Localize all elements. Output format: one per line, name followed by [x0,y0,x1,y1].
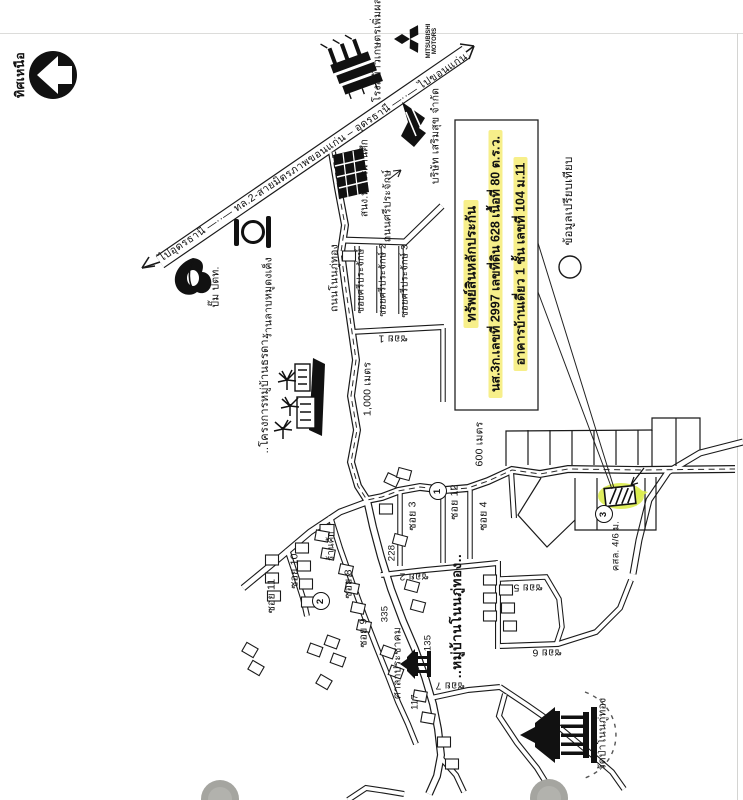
marker-circle-2: 2 [312,592,330,610]
restaurant-label: ร้านลาบหมูดงเค็ง [260,257,277,339]
subject-line1: ทรัพย์สินหลักประกัน [464,200,479,328]
soi-sriprajak-1-label: ซอยศรีประจักษ์ [354,249,369,314]
restaurant-icon [234,216,271,248]
house-number-335: 335 [380,606,391,622]
subject-property-text: ทรัพย์สินหลักประกัน นส.3ก.เลขที่ 2997 เล… [459,130,534,398]
soi-11-label: ซอย 11 [263,579,280,614]
north-label: ทิศเหนือ [10,52,30,98]
concrete-road-size-label: คสล. 4/6 ม. [609,521,624,571]
soi-6-label: ซอย 6 [532,645,561,662]
soi-5-label: ซอย 5 [513,580,542,597]
soi-3-label: ซอย 3 [404,501,421,530]
soi-10-label: ซอย 10 [286,553,303,588]
plot-grid [506,418,700,547]
mitsubishi-label: MITSUBISHI MOTORS [426,24,438,59]
house-number-135: 135 [423,635,434,651]
comparison-data-label: ข้อมูลเปรียบเทียบ [560,157,578,246]
soi-7-label: ซอย 7 [435,678,464,695]
marker-circle-1: 1 [429,482,447,500]
soi-sriprajak-3-label: ซอยศรีประจักษ์ 3 [398,244,413,317]
nonphuthong-road-label: ถนนโนนภู่ทอง [326,244,343,312]
subject-plot [598,468,648,509]
soi-1-label: ซอย 1 [378,331,407,348]
housing-project-label: ..โครงการหมู่บ้านธรดา.. [255,333,273,454]
soi-12-label: ซอย 12 [446,484,463,519]
house-number-117: 117 [410,694,421,710]
soi-2-label: ซอย 2 [399,569,428,586]
mitsubishi-logo-icon [394,23,422,56]
temple-label: วัดป่าโนนภู่ทอง [594,698,611,771]
sermsuk-label: บริษัท เสริมสุข จำกัด [427,88,444,184]
subject-line2: นส.3ก.เลขที่ 2997 เลขที่ดิน 628 เนื้อที่… [489,130,503,398]
veterans-office-label: สนง.ทหารผ่านศึก [358,139,373,217]
distance-600m-label: 600 เมตร [471,421,488,466]
scanned-location-map: ทิศเหนือ ไปอุดรธานี —··— ทล.2-สายมิตรภาพ… [0,0,743,800]
subject-line3: อาคารบ้านเดี่ยว 1 ชั้น เลขที่ 104 ม.11 [514,157,528,372]
soi-9-label: ซอย 9 [355,618,372,647]
sriprajak-road-label: ถนนศรีประจักษ์ [379,170,396,243]
shop-label: ร้านค้า [324,531,339,561]
comparison-circle [559,256,581,278]
sermsuk-building-icon [401,102,426,147]
ptt-station-label: ปั๊ม ปตท. [207,266,224,307]
community-hall-label: ศาลาประชาคม [389,627,406,699]
rice-mill-label: โรงสีข้าวเกษตรเพิ่มผล [369,0,386,102]
distance-1000m-label: 1,000 เมตร [359,362,376,416]
soi-4-label: ซอย 4 [475,501,492,530]
housing-project-icon [274,358,325,439]
village-name-label: ..หมู่บ้านโนนภู่ทอง.. [445,554,467,678]
house-number-228: 228 [387,545,398,561]
north-arrow-icon [29,51,77,99]
soi-sriprajak-2-label: ซอยศรีประจักษ์ 2 [376,243,391,316]
soi-8-label: ซอย 8 [340,569,357,598]
